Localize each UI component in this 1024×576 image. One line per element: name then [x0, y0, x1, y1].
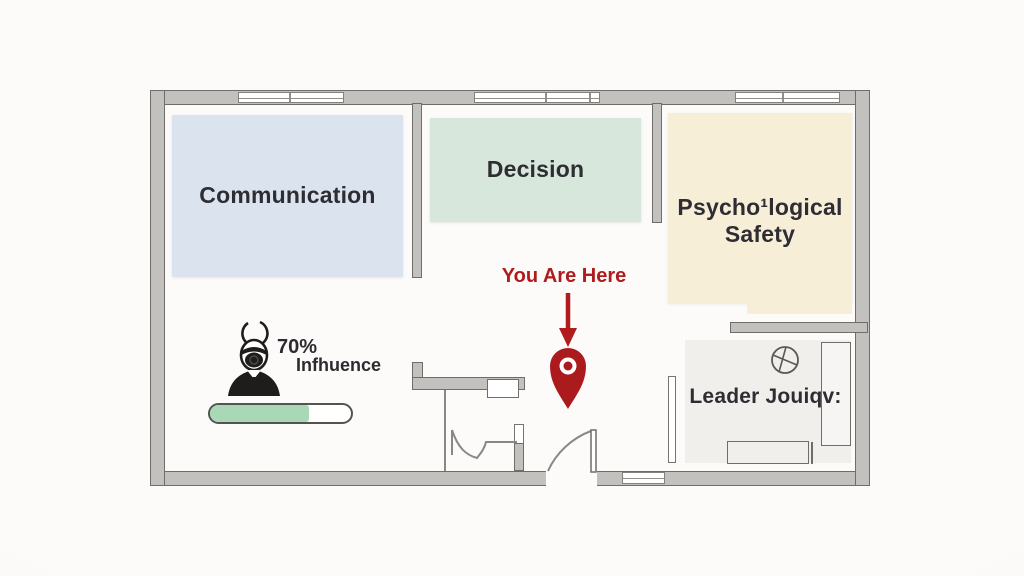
window-mullion: [589, 93, 591, 102]
window-bottom: [622, 472, 665, 484]
window-top-3: [735, 92, 840, 103]
window-top-1: [238, 92, 344, 103]
ceiling-fan-icon: [768, 343, 804, 379]
window-mullion: [545, 93, 547, 102]
map-pin-icon: [545, 343, 591, 413]
interior-wall-decision-psychsafety: [652, 103, 662, 223]
leader-office-partition: [668, 376, 676, 463]
bifold-door-icon: [440, 420, 530, 470]
exterior-wall-bottom: [150, 471, 870, 486]
interior-wall-communication-decision: [412, 103, 422, 278]
window-mullion: [289, 93, 291, 102]
you-are-here-label: You Are Here: [479, 265, 649, 288]
exterior-wall-left: [150, 90, 165, 486]
entrance-door-icon: [540, 425, 605, 490]
exterior-wall-right: [855, 90, 870, 486]
influence-progress-fill: [210, 405, 309, 422]
window-glass-line: [736, 98, 839, 99]
window-top-2: [474, 92, 600, 103]
leader-office-desk-line: [811, 442, 813, 464]
window-mullion: [782, 93, 784, 102]
down-arrow-icon: [552, 290, 584, 350]
label-communication: Communication: [172, 182, 403, 209]
interior-wall-leader-office: [730, 322, 868, 333]
window-glass-line: [239, 98, 343, 99]
label-decision: Decision: [430, 156, 641, 183]
floor-plan-canvas: Communication Decision Psycho¹logical Sa…: [0, 0, 1024, 576]
closet-counter: [487, 379, 519, 398]
window-glass-line: [475, 98, 599, 99]
label-psychological-safety-line2: Safety: [668, 221, 852, 248]
label-psychological-safety: Psycho¹logical Safety: [668, 194, 852, 248]
label-leader-office: Leader Jouiqv:: [678, 385, 853, 409]
influence-progress-track: [208, 403, 353, 424]
influence-label: Infhuence: [296, 355, 381, 376]
person-icon: [224, 318, 284, 398]
label-psychological-safety-line1: Psycho¹logical: [668, 194, 852, 221]
room-psychological-safety-step: [747, 302, 852, 314]
window-glass-line: [623, 478, 664, 479]
leader-office-desk: [727, 441, 809, 464]
